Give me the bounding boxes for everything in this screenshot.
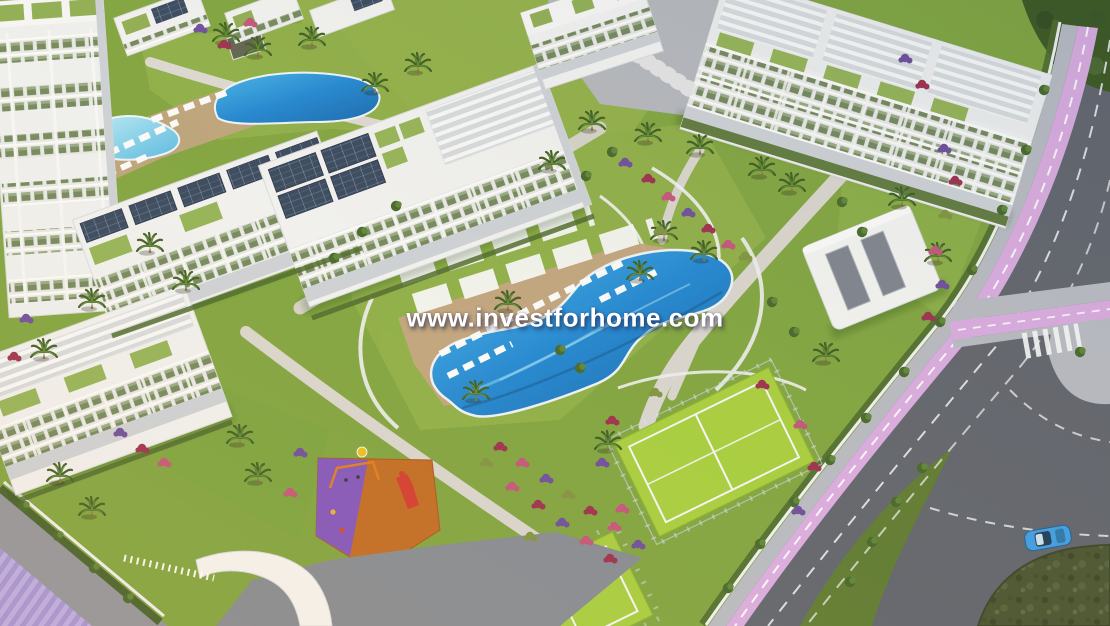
aerial-render-image: www.investforhome.com (0, 0, 1110, 626)
watermark-text: www.investforhome.com (406, 303, 723, 334)
